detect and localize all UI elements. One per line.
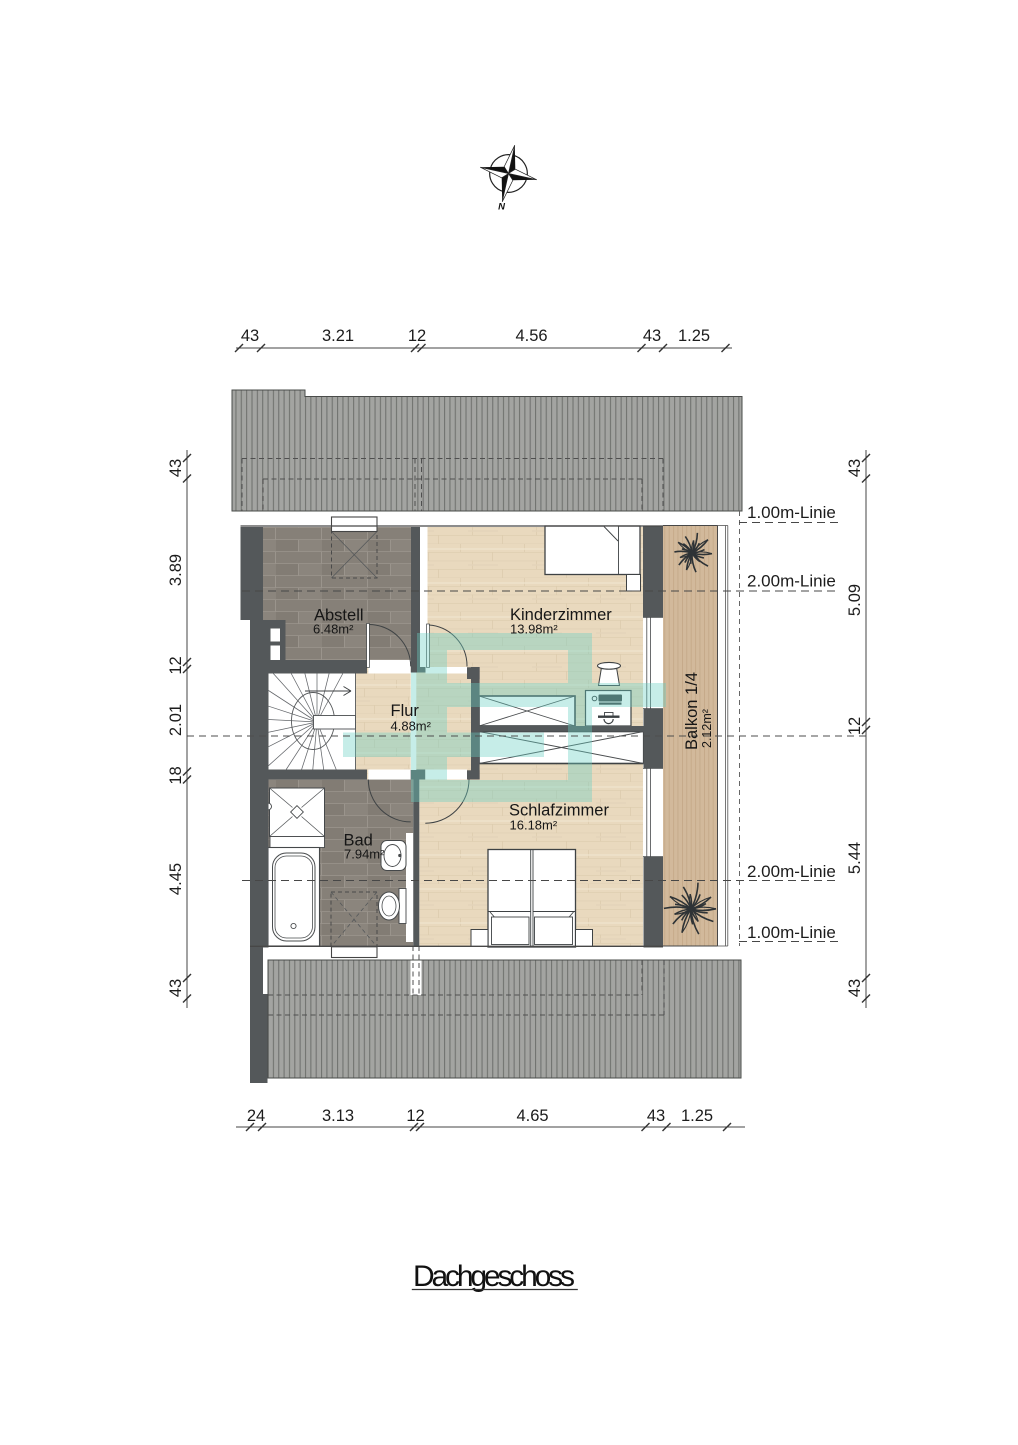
svg-text:Flur: Flur bbox=[391, 702, 420, 720]
svg-text:16.18m²: 16.18m² bbox=[510, 818, 558, 833]
svg-text:1.25: 1.25 bbox=[678, 327, 710, 345]
svg-text:13.98m²: 13.98m² bbox=[510, 622, 558, 637]
svg-text:43: 43 bbox=[643, 327, 661, 345]
svg-text:43: 43 bbox=[167, 979, 185, 997]
svg-text:Balkon 1/4: Balkon 1/4 bbox=[683, 672, 701, 750]
svg-text:2.00m-Linie: 2.00m-Linie bbox=[747, 862, 836, 881]
svg-text:3.89: 3.89 bbox=[167, 554, 185, 586]
svg-text:4.88m²: 4.88m² bbox=[391, 719, 432, 734]
svg-text:1.00m-Linie: 1.00m-Linie bbox=[747, 503, 836, 522]
svg-text:4.45: 4.45 bbox=[167, 863, 185, 895]
svg-text:12: 12 bbox=[406, 1107, 424, 1125]
svg-text:43: 43 bbox=[846, 979, 864, 997]
svg-text:7.94m²: 7.94m² bbox=[344, 847, 385, 862]
svg-text:5.44: 5.44 bbox=[846, 842, 864, 874]
svg-text:18: 18 bbox=[167, 766, 185, 784]
svg-text:3.13: 3.13 bbox=[322, 1107, 354, 1125]
svg-text:1.00m-Linie: 1.00m-Linie bbox=[747, 923, 836, 942]
svg-text:Dachgeschoss: Dachgeschoss bbox=[413, 1260, 575, 1293]
svg-text:4.56: 4.56 bbox=[515, 327, 547, 345]
svg-text:43: 43 bbox=[846, 459, 864, 477]
svg-text:2.12m²: 2.12m² bbox=[700, 709, 714, 748]
svg-text:N: N bbox=[498, 202, 506, 213]
svg-text:12: 12 bbox=[167, 656, 185, 674]
svg-text:2.01: 2.01 bbox=[167, 704, 185, 736]
svg-text:4.65: 4.65 bbox=[516, 1107, 548, 1125]
svg-text:5.09: 5.09 bbox=[846, 584, 864, 616]
svg-text:24: 24 bbox=[247, 1107, 265, 1125]
svg-text:43: 43 bbox=[241, 327, 259, 345]
svg-text:6.48m²: 6.48m² bbox=[313, 622, 354, 637]
svg-text:43: 43 bbox=[647, 1107, 665, 1125]
svg-text:2.00m-Linie: 2.00m-Linie bbox=[747, 572, 836, 591]
svg-text:12: 12 bbox=[408, 327, 426, 345]
svg-text:1.25: 1.25 bbox=[681, 1107, 713, 1125]
svg-text:3.21: 3.21 bbox=[322, 327, 354, 345]
svg-text:43: 43 bbox=[167, 459, 185, 477]
svg-text:12: 12 bbox=[846, 717, 864, 735]
